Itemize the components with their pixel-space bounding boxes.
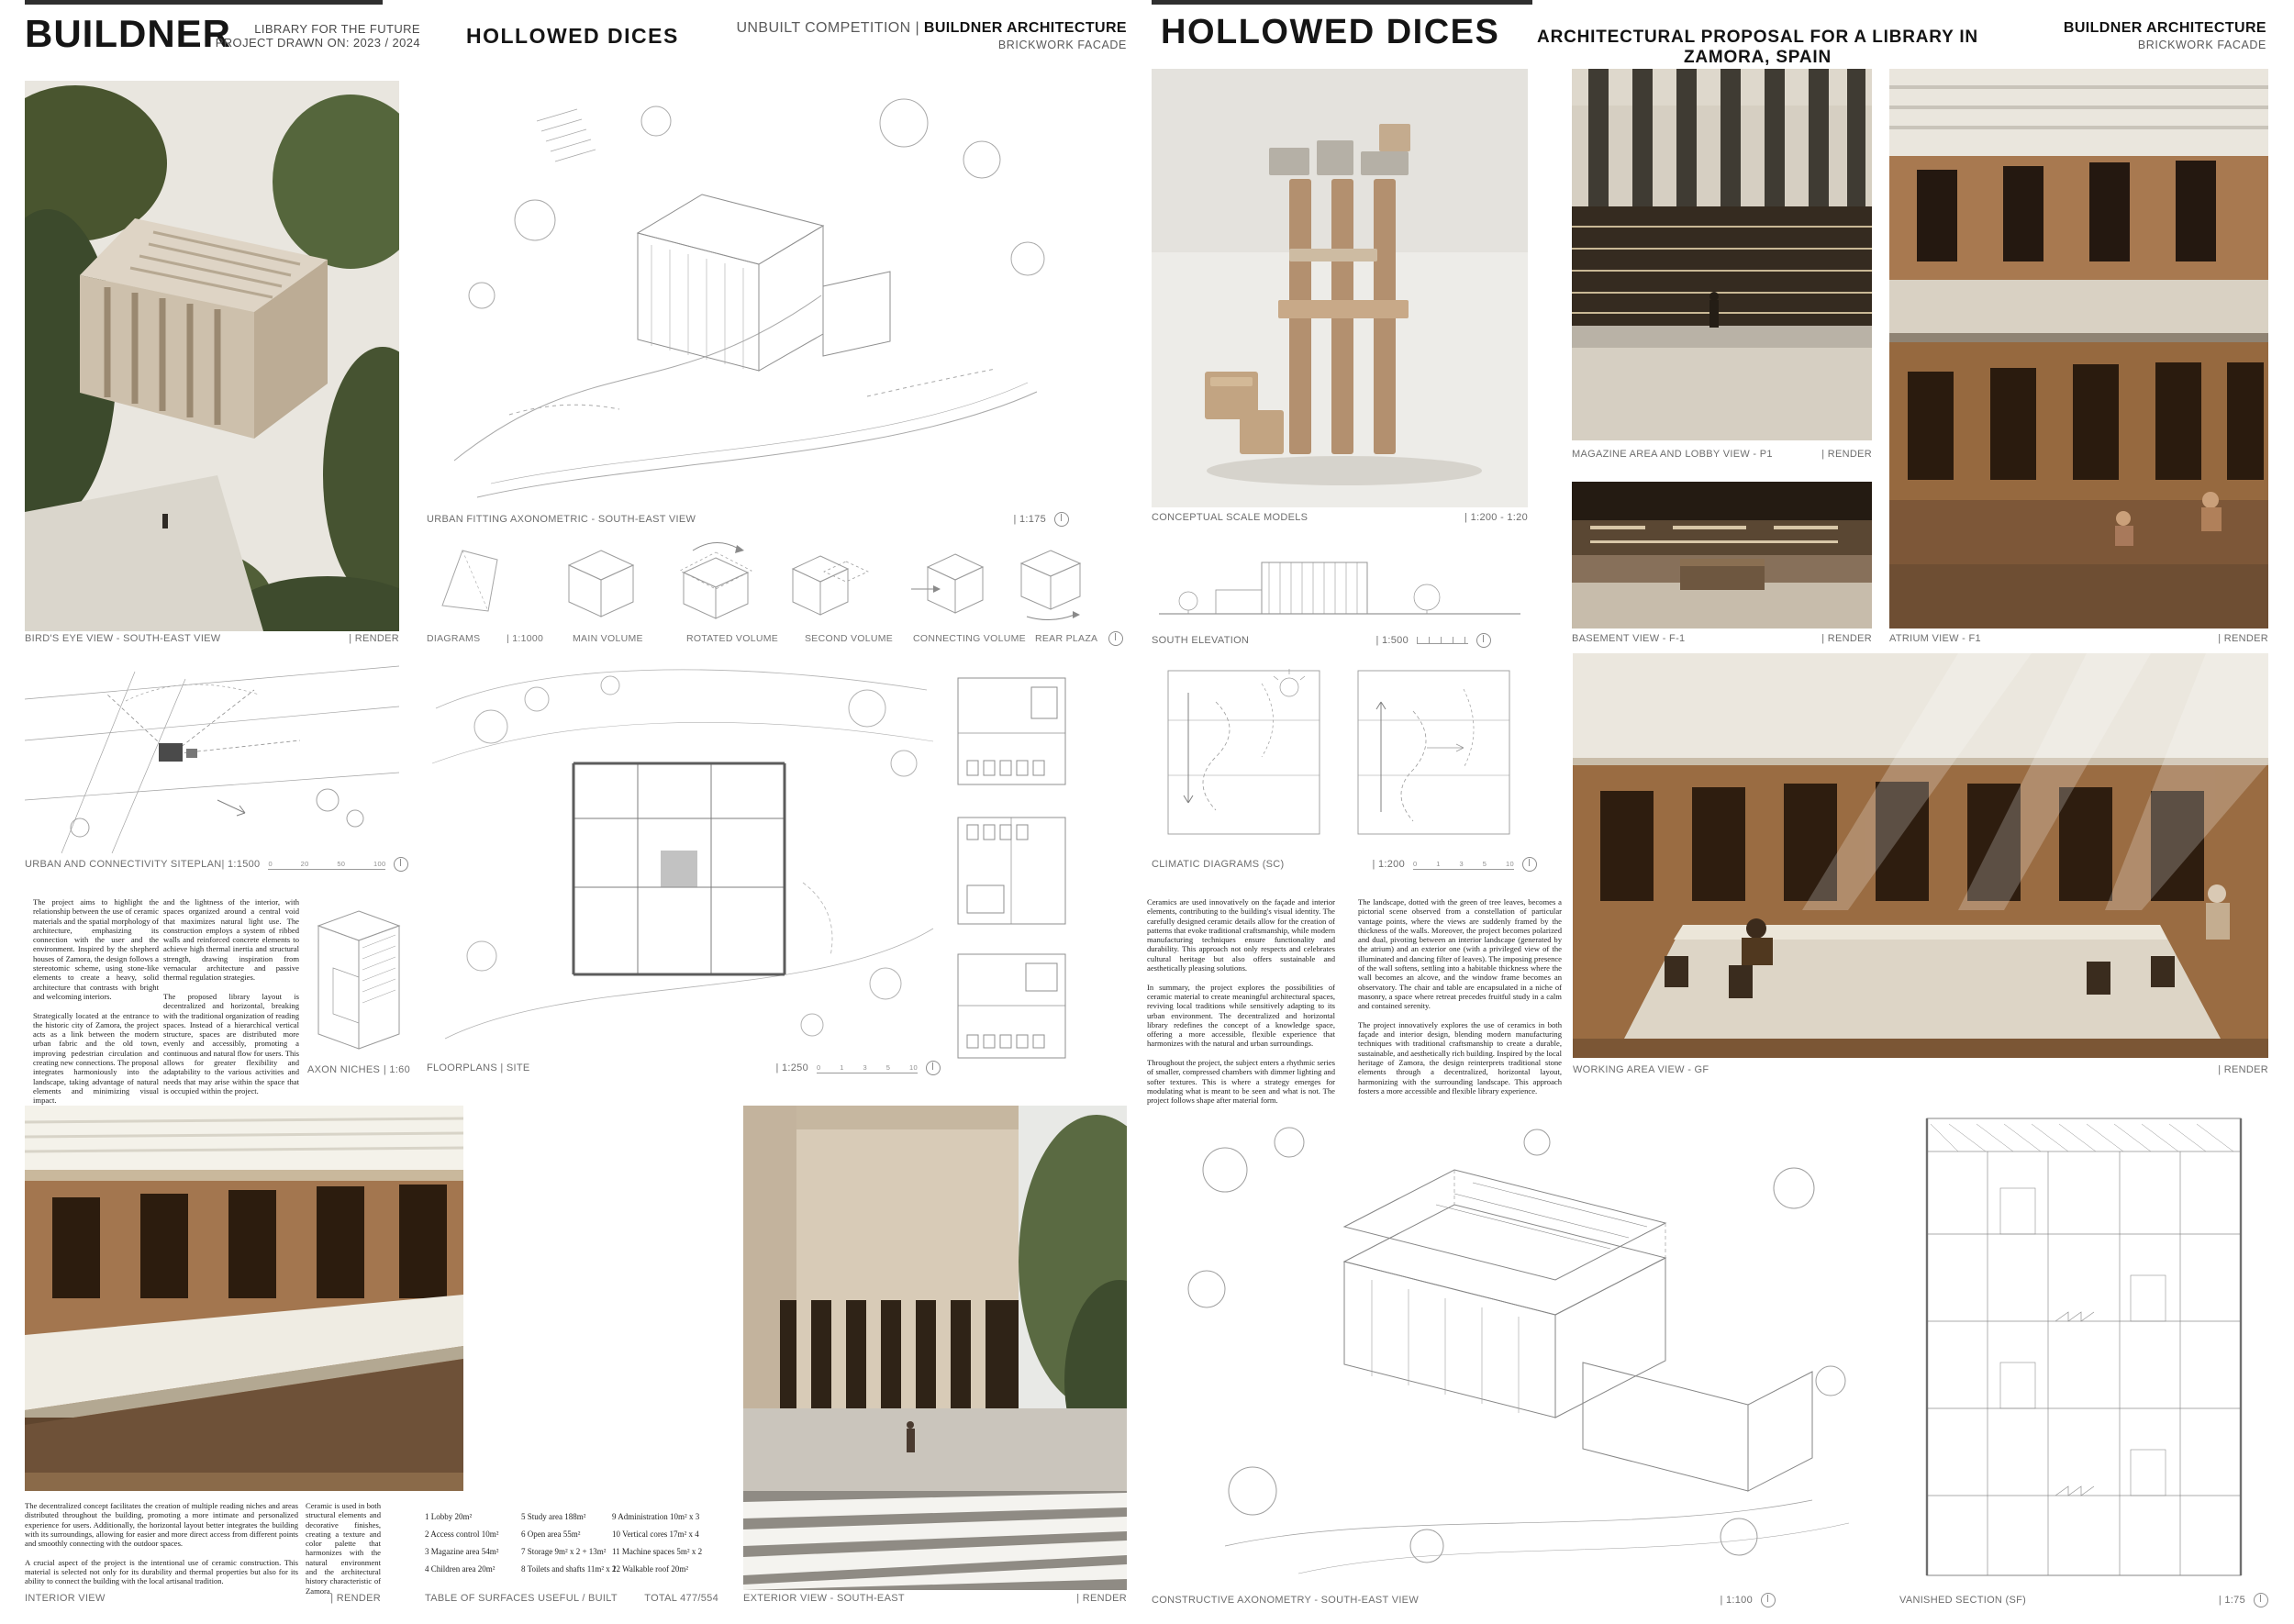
diagram-connecting-volume — [904, 534, 986, 624]
north-arrow-icon — [1522, 857, 1537, 872]
caption-label: URBAN FITTING AXONOMETRIC - SOUTH-EAST V… — [427, 514, 696, 525]
caption-label: CLIMATIC DIAGRAMS (SC) — [1152, 859, 1285, 870]
caption-working-area: WORKING AREA VIEW - GF | RENDER — [1573, 1064, 2268, 1075]
scale-number: 10 — [1506, 860, 1514, 868]
caption-scale-tag: | 1:100 — [1720, 1595, 1753, 1606]
north-arrow-icon — [1476, 633, 1491, 648]
scale-number: 0 — [817, 1063, 820, 1072]
mini-floorplan-2 — [954, 812, 1069, 929]
caption-conceptual-models: CONCEPTUAL SCALE MODELS | 1:200 - 1:20 — [1152, 512, 1528, 523]
intro-text-column-1: The project aims to highlight the relati… — [33, 897, 159, 1073]
magazine-lobby-render-image — [1572, 69, 1872, 440]
birds-eye-render-image — [25, 81, 399, 631]
scale-number: 10 — [909, 1063, 918, 1072]
surface-row: 12 Walkable roof 20m² — [612, 1564, 702, 1574]
surface-row: 11 Machine spaces 5m² x 2 — [612, 1547, 702, 1556]
board-left-meta: UNBUILT COMPETITION | BUILDNER ARCHITECT… — [736, 20, 1127, 51]
scale-number: 3 — [1460, 860, 1464, 868]
working-area-render-image — [1573, 653, 2268, 1058]
unbuilt-competition-label: UNBUILT COMPETITION | — [736, 20, 923, 36]
surface-row: 6 Open area 55m² — [521, 1529, 617, 1539]
top-rule-right — [1152, 0, 1532, 5]
caption-label: VANISHED SECTION (SF) — [1899, 1595, 2026, 1606]
caption-scale-group: | 1:250 013510 — [775, 1061, 941, 1075]
caption-scale-group: | 1:200 013510 — [1372, 857, 1537, 872]
studio-name: BUILDNER ARCHITECTURE — [924, 20, 1127, 36]
diagram-label-rotated-volume: ROTATED VOLUME — [686, 633, 778, 644]
surface-row: 7 Storage 9m² x 2 + 13m² — [521, 1547, 617, 1556]
diagram-second-volume — [789, 534, 872, 624]
caption-floorplans: FLOORPLANS | SITE | 1:250 013510 — [427, 1061, 941, 1075]
caption-urban-axonometric: URBAN FITTING AXONOMETRIC - SOUTH-EAST V… — [427, 512, 1069, 527]
basement-render-image — [1572, 482, 1872, 628]
surface-row: 5 Study area 188m² — [521, 1512, 617, 1521]
scale-number: 5 — [1483, 860, 1487, 868]
diagram-main-volume — [560, 534, 642, 624]
caption-vanished-section: VANISHED SECTION (SF) | 1:75 — [1899, 1593, 2268, 1607]
top-rule-left — [25, 0, 383, 5]
interior-view-render-image — [25, 1106, 463, 1491]
caption-label: SOUTH ELEVATION — [1152, 635, 1249, 646]
siteplan-drawing — [25, 653, 399, 853]
caption-scale-tag: | 1:200 — [1372, 859, 1405, 870]
mini-floorplan-1 — [954, 673, 1069, 790]
caption-scale-tag: | 1:1500 — [221, 859, 260, 870]
surface-row: 3 Magazine area 54m² — [425, 1547, 498, 1556]
mini-floorplan-3 — [954, 951, 1069, 1063]
diagram-label-second-volume: SECOND VOLUME — [805, 633, 893, 644]
caption-scale-group: | 1:75 — [2219, 1593, 2268, 1607]
caption-scale-group: | 1:175 — [1013, 512, 1069, 527]
caption-scale-group: | 1:500 — [1375, 633, 1491, 648]
surface-row: 8 Toilets and shafts 11m² x 2 — [521, 1564, 617, 1574]
surface-row: 10 Vertical cores 17m² x 4 — [612, 1529, 702, 1539]
north-arrow-icon — [1108, 631, 1123, 646]
caption-scale-tag: | RENDER — [2218, 1064, 2268, 1075]
climatic-diagrams-drawing — [1152, 656, 1528, 851]
exterior-view-render-image — [743, 1106, 1127, 1590]
buildner-logo: BUILDNER — [25, 15, 231, 53]
caption-climatic-diagrams: CLIMATIC DIAGRAMS (SC) | 1:200 013510 — [1152, 857, 1537, 872]
caption-scale-tag: | RENDER — [330, 1593, 381, 1604]
scale-bar: 013510 — [1413, 860, 1514, 870]
surface-table-column-2: 5 Study area 188m² 6 Open area 55m² 7 St… — [521, 1512, 617, 1574]
caption-label: ATRIUM VIEW - F1 — [1889, 633, 1981, 644]
surface-row: 9 Administration 10m² x 3 — [612, 1512, 702, 1521]
scale-number: 100 — [373, 860, 385, 868]
project-subtitle: ARCHITECTURAL PROPOSAL FOR A LIBRARY IN … — [1508, 28, 2008, 68]
landscape-text-column-2: The landscape, dotted with the green of … — [1358, 897, 1562, 1081]
caption-scale-tag: | 1:175 — [1013, 514, 1046, 525]
caption-scale-tag: | 1:200 - 1:20 — [1464, 512, 1528, 523]
caption-label: WORKING AREA VIEW - GF — [1573, 1064, 1709, 1075]
scale-number: 5 — [886, 1063, 890, 1072]
facade-type: BRICKWORK FACADE — [2064, 39, 2266, 51]
scale-number: 0 — [1413, 860, 1417, 868]
conceptual-models-photo — [1152, 69, 1528, 507]
surface-row: 2 Access control 10m² — [425, 1529, 498, 1539]
board-right-meta: BUILDNER ARCHITECTURE BRICKWORK FACADE — [2064, 20, 2266, 51]
north-arrow-icon — [2254, 1593, 2268, 1607]
north-arrow-icon — [1761, 1593, 1776, 1607]
axon-niches-drawing — [307, 904, 410, 1058]
scale-bar: 02050100 — [268, 860, 385, 870]
competition-name: LIBRARY FOR THE FUTURE — [211, 22, 420, 36]
project-title-right: HOLLOWED DICES — [1161, 15, 1499, 50]
competition-type: UNBUILT COMPETITION | BUILDNER ARCHITECT… — [736, 20, 1127, 37]
caption-exterior-view: EXTERIOR VIEW - SOUTH-EAST | RENDER — [743, 1593, 1127, 1604]
caption-constructive-axonometry: CONSTRUCTIVE AXONOMETRY - SOUTH-EAST VIE… — [1152, 1593, 1776, 1607]
diagram-label-main-volume: MAIN VOLUME — [573, 633, 643, 644]
caption-basement-view: BASEMENT VIEW - F-1 | RENDER — [1572, 633, 1872, 644]
caption-label: CONSTRUCTIVE AXONOMETRY - SOUTH-EAST VIE… — [1152, 1595, 1419, 1606]
diagram-rotated-volume — [674, 534, 757, 624]
diagram-site — [431, 534, 505, 624]
diagram-rear-plaza — [1014, 534, 1087, 624]
caption-siteplan: URBAN AND CONNECTIVITY SITEPLAN | 1:1500… — [25, 857, 399, 872]
scale-number: 20 — [301, 860, 309, 868]
caption-label: TABLE OF SURFACES USEFUL / BUILT — [425, 1593, 618, 1604]
surface-row: 4 Children area 20m² — [425, 1564, 498, 1574]
bottom-text-ceramic: Ceramic is used in both structural eleme… — [306, 1501, 381, 1602]
intro-text-column-2: and the lightness of the interior, with … — [163, 897, 299, 1073]
caption-label: EXTERIOR VIEW - SOUTH-EAST — [743, 1593, 905, 1604]
caption-label: FLOORPLANS | SITE — [427, 1062, 529, 1073]
studio-name-text: BUILDNER ARCHITECTURE — [2064, 20, 2266, 36]
caption-interior-view: INTERIOR VIEW | RENDER — [25, 1593, 381, 1604]
scale-number: 1 — [840, 1063, 843, 1072]
caption-magazine-area: MAGAZINE AREA AND LOBBY VIEW - P1 | REND… — [1572, 449, 1872, 460]
caption-scale-tag: | 1:500 — [1375, 635, 1409, 646]
facade-type: BRICKWORK FACADE — [736, 39, 1127, 51]
caption-label: BASEMENT VIEW - F-1 — [1572, 633, 1685, 644]
north-arrow-icon — [1054, 512, 1069, 527]
studio-name: BUILDNER ARCHITECTURE — [2064, 20, 2266, 37]
caption-scale-tag: | RENDER — [1076, 1593, 1127, 1604]
competition-info: LIBRARY FOR THE FUTURE PROJECT DRAWN ON:… — [211, 22, 420, 50]
caption-label: MAGAZINE AREA AND LOBBY VIEW - P1 — [1572, 449, 1773, 460]
caption-scale-tag: | 1:75 — [2219, 1595, 2245, 1606]
scale-number: 1 — [1436, 860, 1440, 868]
bottom-text-main: The decentralized concept facilitates th… — [25, 1501, 298, 1589]
scale-bar — [1417, 637, 1468, 644]
caption-scale-tag: | RENDER — [2218, 633, 2268, 644]
caption-scale-tag: | RENDER — [349, 633, 399, 644]
caption-scale-tag: | 1:250 — [775, 1062, 808, 1073]
presentation-boards: BUILDNER LIBRARY FOR THE FUTURE PROJECT … — [0, 0, 2294, 1624]
scale-number: 50 — [337, 860, 345, 868]
caption-scale-group: | 1:100 — [1720, 1593, 1776, 1607]
caption-diagrams-label: DIAGRAMS — [427, 633, 480, 644]
caption-surface-table: TABLE OF SURFACES USEFUL / BUILT TOTAL 4… — [425, 1593, 718, 1604]
caption-label: INTERIOR VIEW — [25, 1593, 106, 1604]
caption-label: CONCEPTUAL SCALE MODELS — [1152, 512, 1308, 523]
scale-number: 3 — [863, 1063, 867, 1072]
scale-bar: 013510 — [817, 1063, 918, 1073]
urban-axonometric-drawing — [427, 66, 1069, 508]
ceramics-text-column-1: Ceramics are used innovatively on the fa… — [1147, 897, 1335, 1081]
project-title-left: HOLLOWED DICES — [466, 24, 679, 49]
project-drawn-on: PROJECT DRAWN ON: 2023 / 2024 — [211, 36, 420, 50]
caption-scale-tag: | 1:60 — [384, 1064, 410, 1075]
caption-scale-tag: | RENDER — [1821, 633, 1872, 644]
diagram-label-rear-plaza: REAR PLAZA — [1035, 633, 1097, 644]
surface-table-column-1: 1 Lobby 20m² 2 Access control 10m² 3 Mag… — [425, 1512, 498, 1574]
floorplans-site-drawing — [427, 653, 941, 1055]
caption-label: AXON NICHES — [307, 1064, 380, 1075]
caption-label: URBAN AND CONNECTIVITY SITEPLAN — [25, 859, 221, 870]
caption-atrium-view: ATRIUM VIEW - F1 | RENDER — [1889, 633, 2268, 644]
south-elevation-drawing — [1152, 537, 1528, 628]
caption-scale-group: | 1:1500 02050100 — [221, 857, 408, 872]
atrium-render-image — [1889, 69, 2268, 628]
caption-diagrams-scale: | 1:1000 — [507, 633, 543, 644]
surface-total: TOTAL 477/554 — [644, 1593, 718, 1604]
caption-south-elevation: SOUTH ELEVATION | 1:500 — [1152, 633, 1491, 648]
vanished-section-drawing — [1899, 1106, 2268, 1589]
surface-row: 1 Lobby 20m² — [425, 1512, 498, 1521]
north-arrow-icon — [394, 857, 408, 872]
surface-table-column-3: 9 Administration 10m² x 3 10 Vertical co… — [612, 1512, 702, 1574]
caption-scale-tag: | RENDER — [1821, 449, 1872, 460]
diagram-label-connecting-volume: CONNECTING VOLUME — [913, 633, 1026, 644]
scale-number: 0 — [268, 860, 272, 868]
constructive-axonometry-drawing — [1152, 1106, 1881, 1589]
caption-birds-eye: BIRD'S EYE VIEW - SOUTH-EAST VIEW | REND… — [25, 633, 399, 644]
north-arrow-icon — [926, 1061, 941, 1075]
caption-label: BIRD'S EYE VIEW - SOUTH-EAST VIEW — [25, 633, 221, 644]
caption-axon-niches: AXON NICHES | 1:60 — [307, 1064, 410, 1075]
